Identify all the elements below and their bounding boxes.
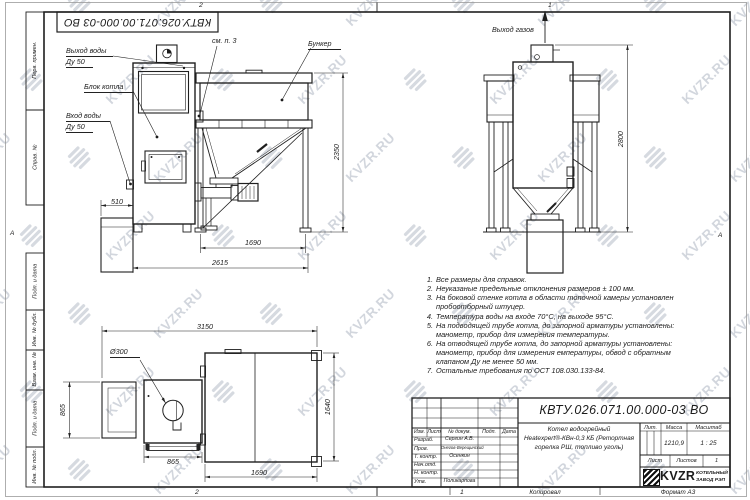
note-line: клапаном Ду не менее 50 мм.: [418, 357, 674, 366]
mass-header: Масса: [661, 425, 687, 431]
notes-list: 1.Все размеры для справок.2.Неуказаные п…: [418, 275, 674, 376]
sheets-label: Листов: [670, 458, 703, 464]
note-line: 2.Неуказаные предельные отклонения разме…: [418, 284, 674, 293]
label-see-note-3: см. п. 3: [212, 37, 236, 45]
label-water-out-line1: Выход воды: [66, 47, 113, 57]
dim-front-height: 2350: [332, 139, 340, 165]
text-layer: КВТУ.026.071.00.000-03 ВО 2 1 2 1 А А Ко…: [0, 0, 750, 500]
header-col-doc: № докум.: [441, 430, 478, 436]
note-line: 1.Все размеры для справок.: [418, 275, 674, 284]
note-line: 5.На подводящей трубе котла, до запорной…: [418, 321, 674, 330]
format-label: Формат А3: [648, 489, 708, 496]
lit-header: Лит.: [640, 425, 661, 431]
zone-number-bottom-left: 2: [195, 489, 199, 497]
dim-plan-pedestal-depth: 865: [59, 397, 67, 423]
zone-number-top-left: 2: [199, 2, 203, 10]
dim-front-total-width: 2615: [206, 259, 234, 267]
copied-label: Копировал: [515, 489, 575, 496]
note-line: 3.На боковой стенке котла в области топо…: [418, 293, 674, 302]
dim-front-pedestal: 510: [103, 198, 131, 206]
header-col-izm: Изм.: [412, 430, 427, 436]
product-title-line3: горелка РШ, топливо уголь): [520, 444, 638, 452]
signature-name: Сергин А.В.: [441, 437, 478, 443]
signature-role: Пров.: [414, 446, 440, 452]
margin-cell-podp-data-1: Подп. и дата: [32, 252, 38, 309]
dim-plan-total: 3150: [191, 323, 219, 331]
signature-name: Осенкин: [441, 454, 478, 460]
zone-number-bottom-right: 1: [460, 489, 464, 497]
company-name-line1: КОТЕЛЬНЫЙ: [696, 471, 728, 477]
kvzr-logo-icon: [643, 469, 660, 486]
label-water-in-line2: Ду 50: [66, 123, 93, 133]
margin-cell-perv-primen: Перв. примен.: [32, 11, 38, 109]
zone-letter-right: А: [718, 232, 722, 239]
zone-letter-left: А: [10, 230, 14, 237]
margin-cell-inv-dubl: Инв. № дубл.: [32, 309, 38, 349]
product-title-line1: Котел водогрейный: [520, 426, 638, 434]
drawing-sheet: KVZR.RUKVZR.RUKVZR.RUKVZR.RUKVZR.RUKVZR.…: [0, 0, 750, 500]
sheets-count: 1: [703, 458, 730, 464]
label-gas-out: Выход газов: [492, 26, 534, 34]
zone-number-top-right: 1: [548, 2, 552, 10]
signature-role: Нач.отд.: [414, 462, 440, 468]
signature-role: Разраб.: [414, 437, 440, 443]
sheet-label: Лист: [640, 458, 670, 464]
header-col-list: Лист: [427, 430, 441, 436]
company-name-line2: ЗАВОД РЭП: [696, 478, 725, 484]
note-line: пробоотборный штуцер.: [418, 302, 674, 311]
label-bore-diameter: Ø300: [110, 348, 140, 358]
label-bunker: Бункер: [308, 40, 341, 50]
dim-plan-boiler-width: 865: [159, 458, 187, 466]
signature-name: Поликарпова: [441, 479, 478, 485]
margin-cell-vzam-inv: Взам. инв. №: [32, 349, 38, 389]
signature-role: Н. контр.: [414, 470, 440, 476]
dim-side-height: 2800: [617, 126, 625, 152]
scale-header: Масштаб: [687, 425, 730, 431]
dim-plan-bunker-depth: 1640: [323, 394, 331, 420]
label-boiler-block: Блок котла: [84, 83, 133, 93]
dim-plan-bunker-width: 1690: [245, 469, 273, 477]
margin-cell-sprav-no: Справ. №: [32, 109, 38, 204]
label-water-in-line1: Вход воды: [66, 112, 110, 122]
signature-role: Т. контр.: [414, 454, 440, 460]
margin-cell-podp-data-2: Подп. и дата: [32, 389, 38, 446]
margin-cell-inv-podl: Инв. № подл.: [32, 446, 38, 486]
mass-value: 1210,9: [661, 440, 687, 447]
signature-name: Онегов-Верещинский: [441, 446, 478, 451]
note-line: 6.На отводящей трубе котла, до запорной …: [418, 339, 674, 348]
header-col-podp: Подп.: [478, 430, 500, 436]
signature-role: Утв.: [414, 479, 440, 485]
note-line: 4.Температура воды на входе 70°С, на вых…: [418, 312, 674, 321]
scale-value: 1 : 25: [687, 440, 730, 447]
note-line: манометр, прибор для измерения температу…: [418, 330, 674, 339]
kvzr-logo-text: KVZR: [660, 469, 695, 483]
dim-front-bunker-width: 1690: [239, 239, 267, 247]
product-title-line2: Heatexpert®-КВн-0,3 КБ (Ретортная: [519, 435, 639, 442]
title-block-doc-number: КВТУ.026.071.00.000-03 ВО: [520, 400, 728, 421]
note-line: 7.Остальные требования по ОСТ 108.030.13…: [418, 366, 674, 375]
top-stamp-doc-number: КВТУ.026.071.00.000-03 ВО: [57, 12, 218, 32]
header-col-data: Дата: [500, 430, 518, 436]
note-line: манометр, прибор для измерения емператур…: [418, 348, 674, 357]
label-water-out-line2: Ду 50: [66, 58, 93, 68]
